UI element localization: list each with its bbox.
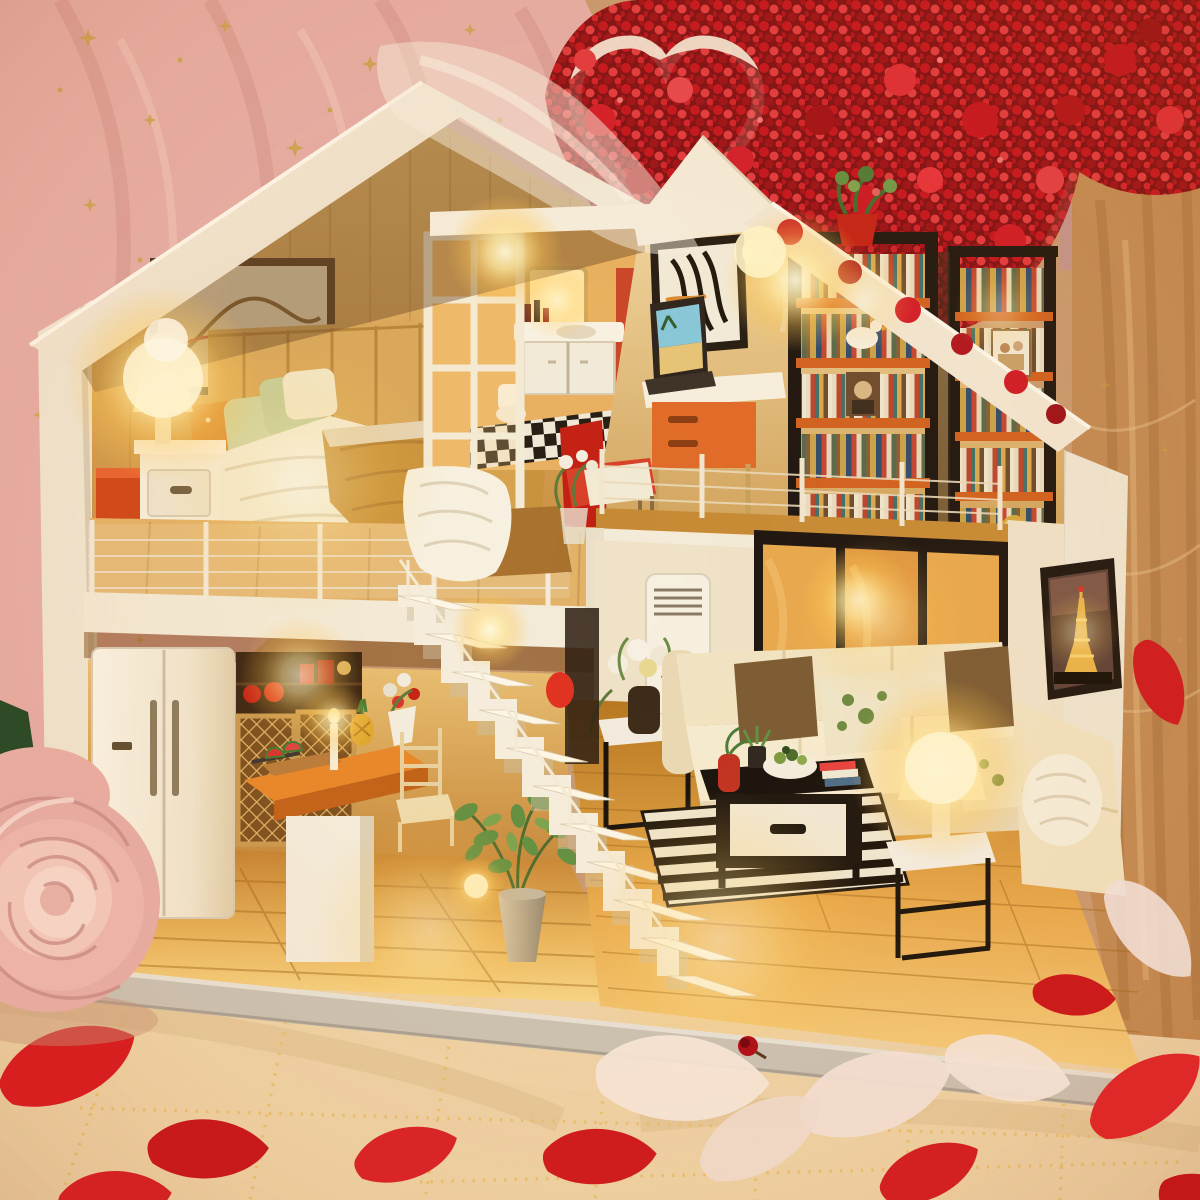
dollhouse-photo: [0, 0, 1200, 1200]
warm-vignette: [0, 0, 1200, 1200]
photo-stage: [0, 0, 1200, 1200]
